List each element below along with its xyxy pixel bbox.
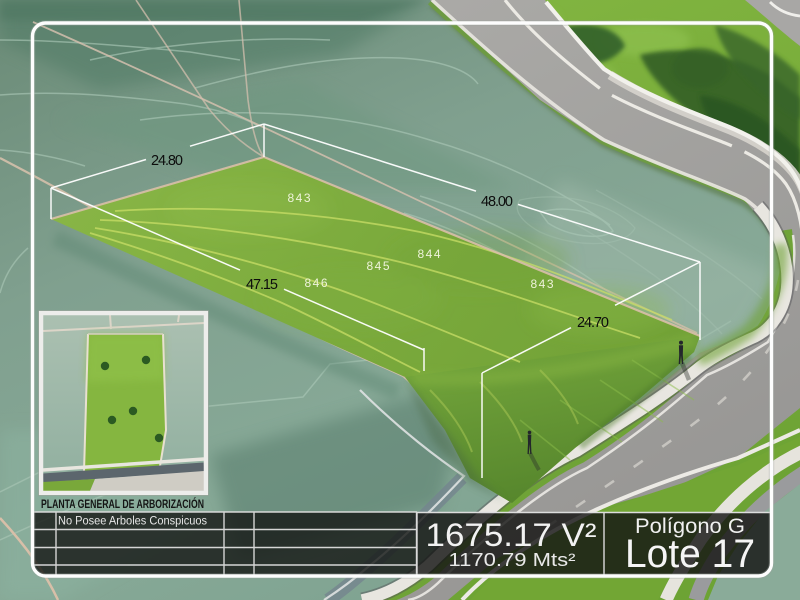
svg-text:No Posee Arboles Conspicuos: No Posee Arboles Conspicuos: [58, 516, 207, 528]
svg-text:843: 843: [531, 277, 554, 291]
svg-text:843: 843: [288, 191, 311, 205]
svg-text:48.00: 48.00: [481, 194, 513, 210]
svg-text:Lote 17: Lote 17: [625, 532, 755, 576]
svg-text:845: 845: [367, 259, 390, 273]
svg-text:844: 844: [418, 247, 441, 261]
svg-text:24.80: 24.80: [151, 153, 183, 169]
svg-text:24.70: 24.70: [577, 315, 609, 331]
svg-text:846: 846: [305, 276, 328, 290]
svg-text:1170.79 Mts²: 1170.79 Mts²: [449, 550, 576, 570]
svg-text:1675.17 V²: 1675.17 V²: [426, 517, 597, 553]
svg-text:47.15: 47.15: [246, 277, 278, 293]
svg-text:PLANTA GENERAL DE ARBORIZACIÓN: PLANTA GENERAL DE ARBORIZACIÓN: [41, 498, 204, 511]
